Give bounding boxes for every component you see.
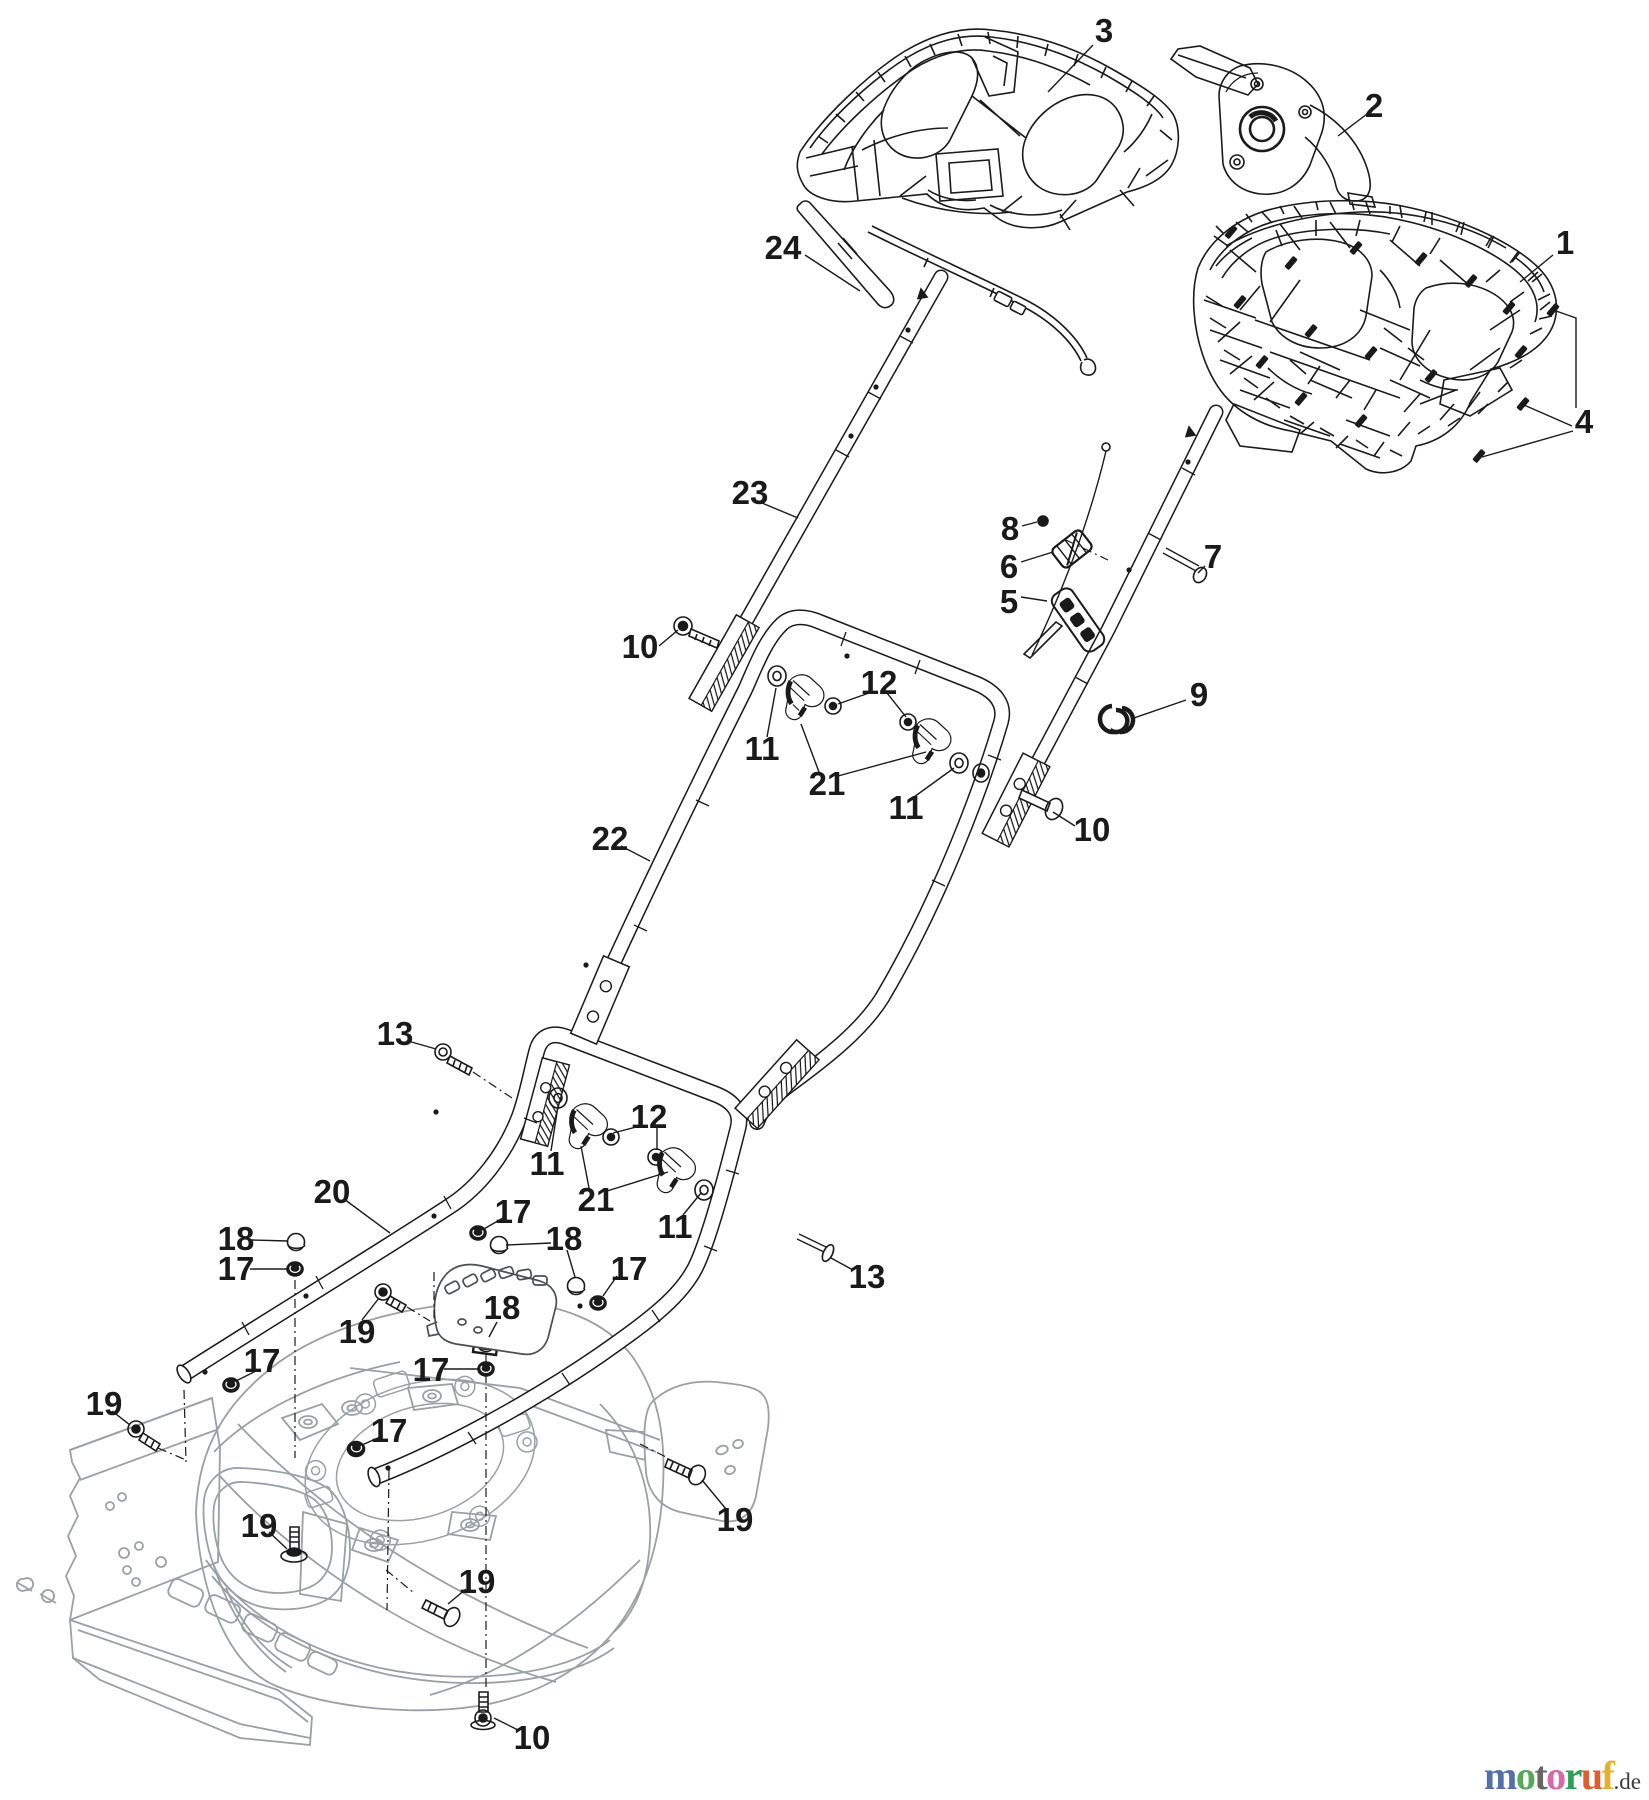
svg-text:12: 12 [861, 664, 898, 701]
svg-text:11: 11 [530, 1145, 565, 1182]
svg-text:21: 21 [578, 1181, 615, 1218]
svg-text:17: 17 [218, 1250, 255, 1287]
svg-text:10: 10 [1074, 811, 1111, 848]
svg-text:19: 19 [717, 1501, 754, 1538]
svg-text:19: 19 [241, 1507, 278, 1544]
svg-text:20: 20 [314, 1173, 351, 1210]
svg-text:2: 2 [1365, 87, 1383, 124]
svg-text:12: 12 [631, 1098, 668, 1135]
svg-text:5: 5 [1000, 583, 1018, 620]
svg-text:13: 13 [377, 1015, 414, 1052]
svg-text:19: 19 [459, 1563, 496, 1600]
svg-text:24: 24 [765, 229, 802, 266]
svg-text:17: 17 [611, 1250, 648, 1287]
svg-text:22: 22 [592, 820, 629, 857]
svg-text:19: 19 [339, 1313, 376, 1350]
svg-text:17: 17 [413, 1351, 450, 1388]
svg-text:7: 7 [1204, 538, 1222, 575]
svg-text:8: 8 [1001, 510, 1019, 547]
svg-text:11: 11 [658, 1208, 693, 1245]
svg-text:11: 11 [745, 730, 780, 767]
svg-text:6: 6 [1000, 548, 1018, 585]
svg-text:21: 21 [809, 765, 846, 802]
svg-text:10: 10 [514, 1719, 551, 1756]
svg-text:23: 23 [732, 474, 769, 511]
svg-text:17: 17 [371, 1412, 408, 1449]
svg-text:11: 11 [889, 789, 924, 826]
svg-text:9: 9 [1190, 676, 1208, 713]
svg-text:17: 17 [244, 1342, 281, 1379]
svg-text:18: 18 [546, 1220, 583, 1257]
svg-text:1: 1 [1556, 224, 1574, 261]
svg-text:17: 17 [495, 1193, 532, 1230]
svg-text:4: 4 [1575, 403, 1594, 440]
svg-text:18: 18 [484, 1289, 521, 1326]
svg-text:10: 10 [622, 628, 659, 665]
svg-text:13: 13 [849, 1258, 886, 1295]
svg-text:19: 19 [86, 1385, 123, 1422]
svg-text:3: 3 [1095, 12, 1113, 49]
